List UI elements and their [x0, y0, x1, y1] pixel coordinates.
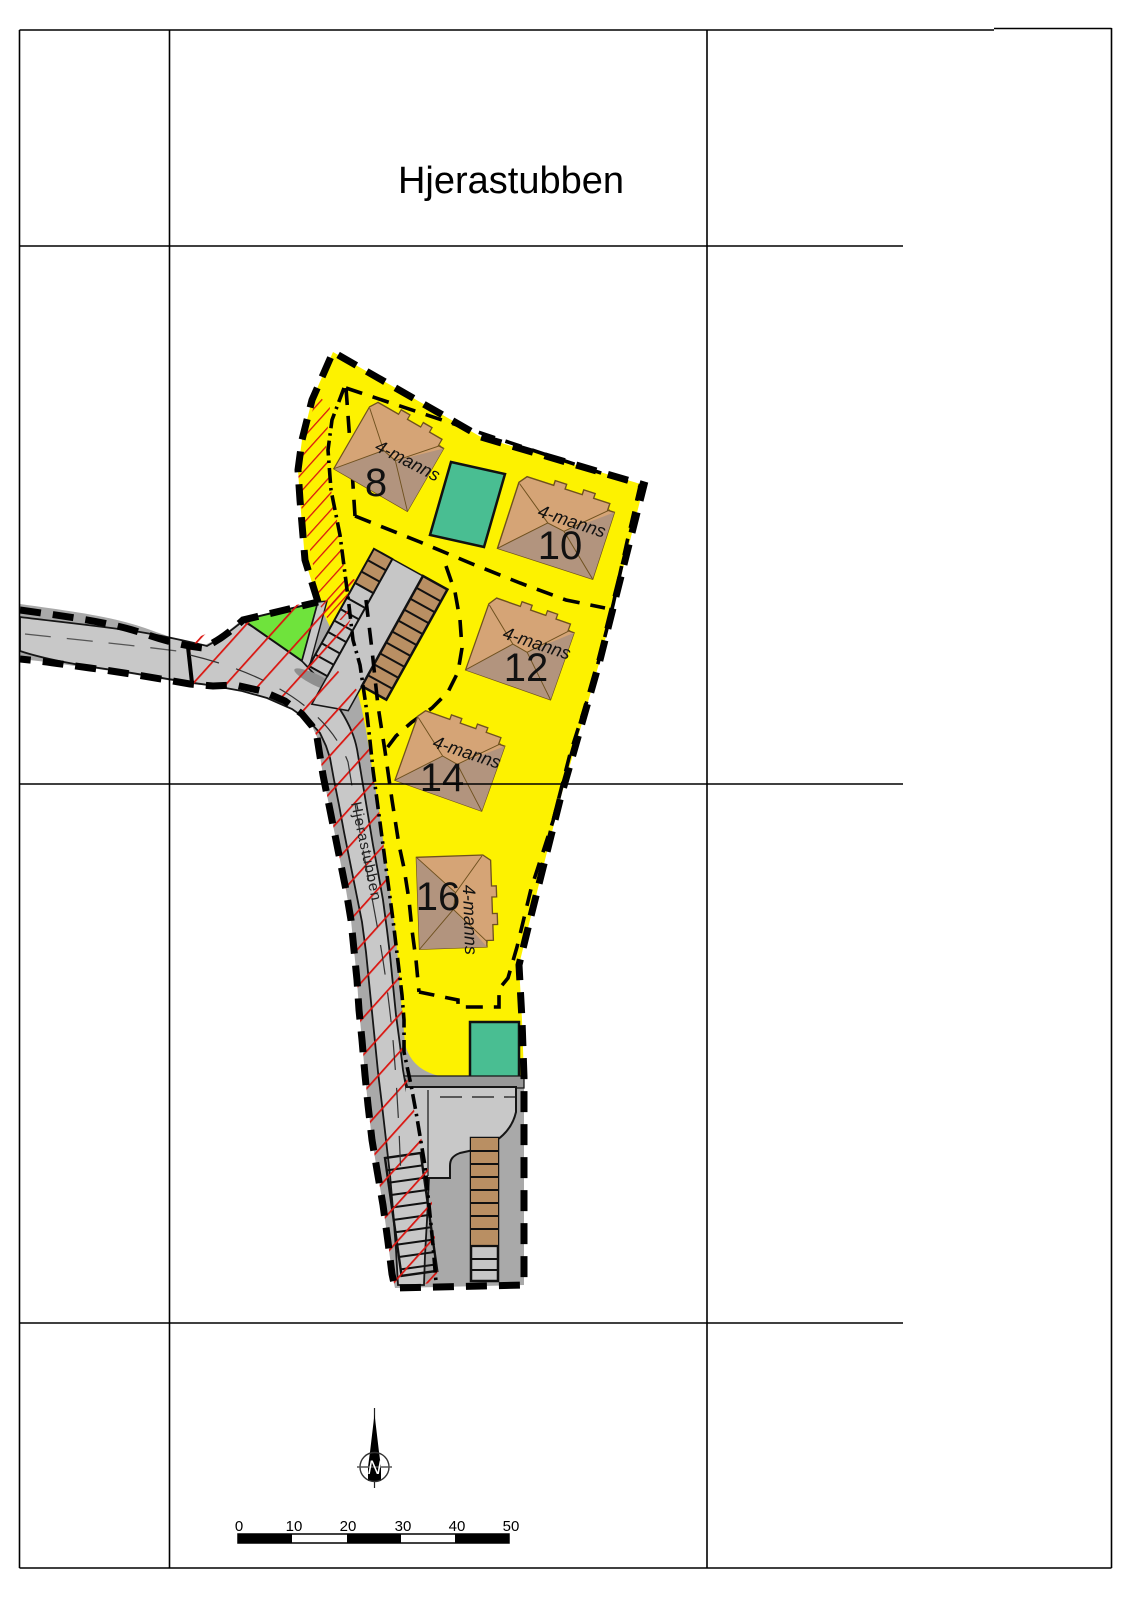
svg-text:4-manns: 4-manns	[459, 884, 481, 955]
svg-text:40: 40	[449, 1518, 466, 1535]
svg-text:50: 50	[503, 1518, 520, 1535]
svg-text:10: 10	[286, 1518, 303, 1535]
svg-text:N: N	[368, 1458, 382, 1479]
svg-text:16: 16	[416, 875, 461, 919]
svg-text:10: 10	[538, 524, 583, 568]
svg-text:12: 12	[504, 646, 549, 690]
svg-text:30: 30	[395, 1518, 412, 1535]
svg-text:8: 8	[365, 461, 387, 505]
svg-text:0: 0	[235, 1518, 243, 1535]
svg-text:Hjerastubben: Hjerastubben	[398, 160, 624, 202]
svg-text:14: 14	[420, 756, 465, 800]
svg-text:20: 20	[340, 1518, 357, 1535]
